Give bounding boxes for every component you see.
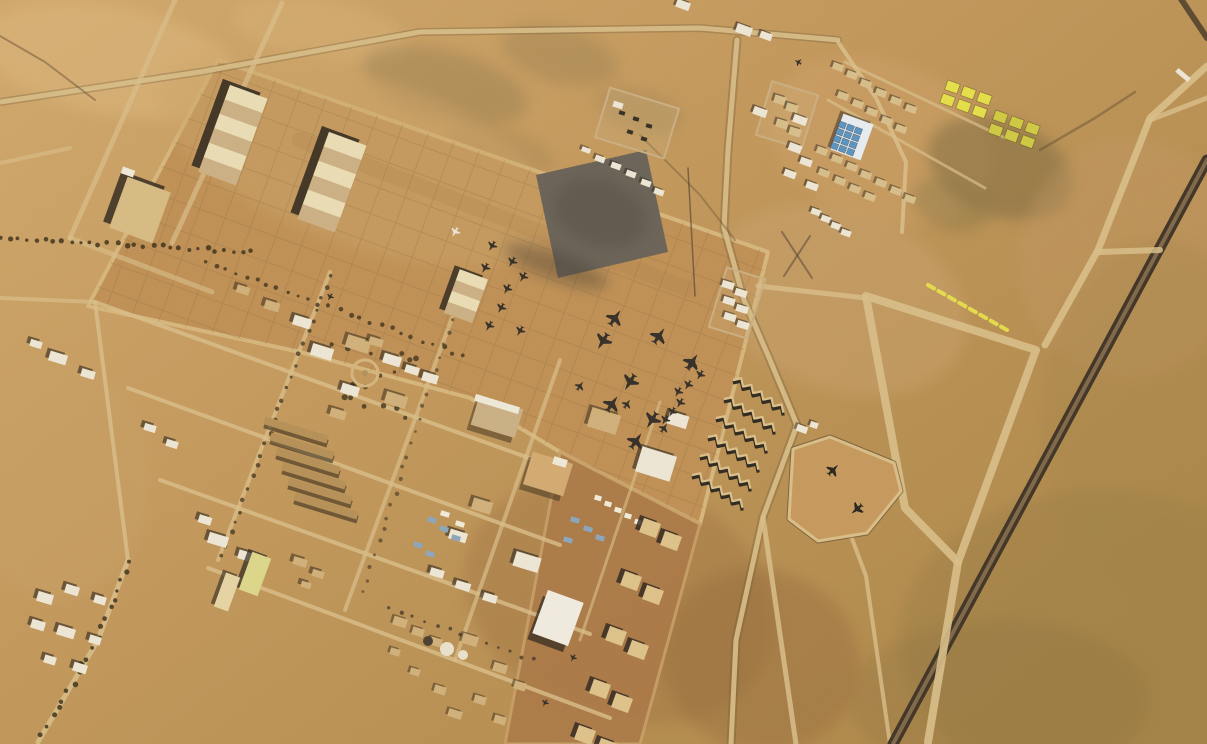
photo-grain-overlay [0,0,1207,744]
satellite-image-stage [0,0,1207,744]
satellite-image [0,0,1207,744]
